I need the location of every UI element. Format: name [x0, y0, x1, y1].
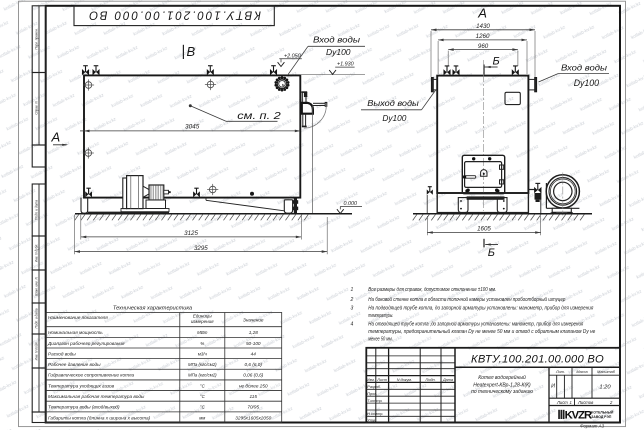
- svg-text:Все размеры для справок, допус: Все размеры для справок, допустимое откл…: [368, 287, 496, 293]
- svg-text:Значение: Значение: [243, 318, 264, 323]
- svg-text:Номинальная мощность: Номинальная мощность: [48, 330, 103, 335]
- svg-text:3295: 3295: [194, 245, 208, 252]
- svg-text:температуры, предохранительный: температуры, предохранительный клапан Dу…: [368, 328, 595, 335]
- svg-text:В: В: [187, 44, 196, 59]
- svg-text:1430: 1430: [476, 23, 490, 30]
- svg-text:Гидравлическое сопротивление к: Гидравлическое сопротивление котла: [48, 373, 135, 378]
- svg-text:%: %: [200, 341, 204, 346]
- svg-text:менее 50 мм.: менее 50 мм.: [368, 337, 393, 343]
- svg-text:Выход воды: Выход воды: [367, 99, 419, 108]
- svg-text:Подп.: Подп.: [426, 378, 436, 382]
- svg-text:Масштаб: Масштаб: [597, 370, 616, 374]
- svg-text:И: И: [551, 384, 555, 390]
- svg-text:МВт: МВт: [197, 330, 208, 335]
- svg-text:960: 960: [478, 43, 489, 50]
- svg-text:Расход воды: Расход воды: [48, 351, 76, 356]
- svg-text:1605: 1605: [477, 226, 491, 233]
- svg-text:Вход воды: Вход воды: [313, 35, 360, 44]
- svg-text:Утв.: Утв.: [367, 418, 376, 422]
- svg-text:1:20: 1:20: [599, 384, 611, 390]
- svg-text:На отводящей трубе котла ,до з: На отводящей трубе котла ,до запорной ар…: [368, 320, 583, 327]
- svg-text:+1.930: +1.930: [337, 61, 354, 67]
- svg-text:Лист: Лист: [376, 378, 387, 382]
- svg-text:70/95: 70/95: [247, 405, 259, 410]
- svg-text:1: 1: [351, 287, 354, 293]
- svg-text:Heatexpert-КВр-1,28-К(К): Heatexpert-КВр-1,28-К(К): [473, 383, 531, 389]
- svg-text:Подп. и дата: Подп. и дата: [34, 308, 38, 328]
- svg-text:Габариты котла (длинна х ширин: Габариты котла (длинна х ширина х высота…: [48, 415, 151, 420]
- svg-text:Диапазон рабочего регулировани: Диапазон рабочего регулирования: [47, 341, 125, 346]
- svg-text:Перв. примен.: Перв. примен.: [34, 28, 38, 49]
- svg-text:Dy100: Dy100: [574, 78, 599, 88]
- svg-text:Листов: Листов: [577, 400, 594, 405]
- svg-text:1,28: 1,28: [249, 330, 259, 335]
- svg-text:Лит.: Лит.: [555, 370, 565, 374]
- svg-text:Температура воды (вход/выход): Температура воды (вход/выход): [48, 405, 120, 410]
- svg-text:Dy100: Dy100: [326, 48, 351, 57]
- svg-text:3125: 3125: [184, 230, 198, 237]
- svg-text:Б: Б: [493, 56, 500, 68]
- svg-text:Разраб.: Разраб.: [367, 385, 381, 389]
- svg-text:1260: 1260: [476, 33, 490, 40]
- svg-text:температуры.: температуры.: [368, 313, 393, 319]
- svg-text:N докум.: N докум.: [397, 378, 412, 382]
- svg-text:KVZR: KVZR: [565, 410, 592, 422]
- svg-text:Котел водогрейный: Котел водогрейный: [478, 374, 526, 381]
- svg-text:не более 250: не более 250: [239, 383, 268, 388]
- svg-text:Справ. N: Справ. N: [34, 101, 38, 115]
- svg-text:А: А: [477, 6, 487, 21]
- svg-text:0,6 (6,0): 0,6 (6,0): [245, 362, 263, 367]
- svg-text:Температура уходящих газов: Температура уходящих газов: [48, 383, 115, 388]
- svg-text:115: 115: [250, 394, 258, 399]
- svg-text:КВТУ.100.201.00.000 ВО: КВТУ.100.201.00.000 ВО: [87, 9, 261, 21]
- svg-text:Масса: Масса: [576, 370, 587, 374]
- svg-text:КВТУ.100.201.00.000 ВО: КВТУ.100.201.00.000 ВО: [471, 354, 604, 366]
- svg-text:50-100: 50-100: [246, 341, 261, 346]
- svg-text:3: 3: [351, 306, 354, 312]
- svg-text:Взам. инв. N: Взам. инв. N: [34, 277, 38, 296]
- svg-text:Н.контр.: Н.контр.: [367, 412, 383, 416]
- svg-text:КОТЕЛЬНЫЙ: КОТЕЛЬНЫЙ: [591, 411, 614, 415]
- svg-text:Пров.: Пров.: [367, 392, 377, 396]
- svg-text:измерения: измерения: [191, 319, 214, 324]
- svg-text:44: 44: [251, 351, 257, 356]
- svg-text:Dy100: Dy100: [382, 113, 406, 123]
- svg-text:3045: 3045: [185, 123, 200, 130]
- svg-text:1: 1: [570, 400, 572, 405]
- svg-text:МПа (кгс/см2): МПа (кгс/см2): [188, 362, 217, 367]
- svg-text:Лист: Лист: [556, 400, 568, 405]
- svg-text:Б: Б: [488, 247, 495, 259]
- svg-text:°С: °С: [200, 394, 206, 399]
- svg-text:2: 2: [350, 297, 354, 303]
- svg-text:А: А: [51, 130, 61, 145]
- svg-text:м3/ч: м3/ч: [198, 351, 208, 356]
- svg-text:На подводящей трубе котла, до: На подводящей трубе котла, до запорной а…: [368, 305, 593, 312]
- svg-text:Инв. N подл.: Инв. N подл.: [34, 342, 38, 361]
- svg-text:Т.контр.: Т.контр.: [367, 399, 382, 403]
- svg-text:ЗАВОД РЭП: ЗАВОД РЭП: [591, 415, 612, 419]
- svg-text:см. п. 2: см. п. 2: [237, 110, 281, 122]
- svg-text:Рабочее давление воды: Рабочее давление воды: [48, 362, 101, 367]
- svg-text:Подп. и дата: Подп. и дата: [34, 200, 38, 220]
- svg-text:Формат А3: Формат А3: [580, 423, 605, 428]
- svg-text:мм: мм: [199, 415, 205, 420]
- svg-text:Инв. N дубл.: Инв. N дубл.: [34, 244, 38, 263]
- svg-text:МПа (кгс/см2): МПа (кгс/см2): [188, 373, 217, 378]
- svg-text:Изм.: Изм.: [367, 378, 375, 382]
- svg-text:Вход воды: Вход воды: [561, 64, 607, 73]
- svg-text:°С: °С: [200, 405, 206, 410]
- svg-text:Техническая характеристика: Техническая характеристика: [113, 305, 192, 311]
- svg-text:°С: °С: [200, 383, 206, 388]
- svg-text:3295х1605х2050: 3295х1605х2050: [235, 415, 271, 420]
- svg-text:Наименование показателя: Наименование показателя: [48, 315, 108, 320]
- svg-text:0,06 (0,6): 0,06 (0,6): [243, 373, 264, 378]
- svg-text:Дата: Дата: [442, 378, 453, 382]
- svg-text:по техническому заданию: по техническому заданию: [471, 389, 533, 395]
- svg-text:4: 4: [351, 321, 354, 327]
- svg-text:Максимальная рабочая температу: Максимальная рабочая температура воды: [48, 394, 145, 399]
- svg-text:Единицы: Единицы: [193, 313, 213, 318]
- svg-text:На боковой стенке котла в обла: На боковой стенке котла в области топочн…: [368, 296, 565, 303]
